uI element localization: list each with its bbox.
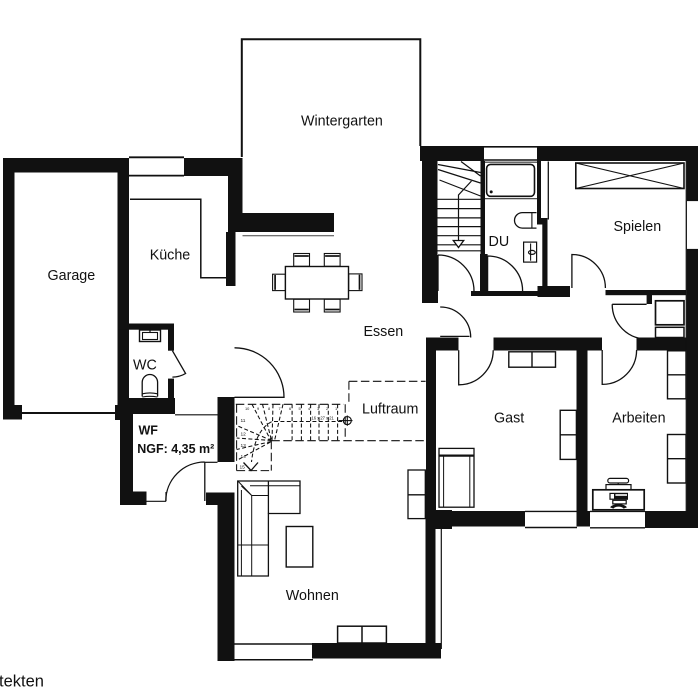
svg-text:Essen: Essen — [364, 324, 404, 340]
svg-text:7: 7 — [279, 406, 281, 411]
svg-text:Luftraum: Luftraum — [362, 401, 418, 417]
svg-text:Garage: Garage — [48, 268, 96, 284]
svg-text:Küche: Küche — [150, 248, 191, 264]
svg-text:12: 12 — [241, 432, 247, 438]
svg-text:WC: WC — [133, 358, 157, 374]
svg-text:11: 11 — [241, 418, 246, 424]
svg-text:Arbeiten: Arbeiten — [612, 410, 665, 426]
svg-text:DU: DU — [489, 234, 510, 250]
svg-text:16 x 27 x 21: 16 x 27 x 21 — [312, 415, 335, 420]
svg-text:Spielen: Spielen — [614, 219, 662, 235]
svg-text:tekten: tekten — [0, 673, 44, 691]
svg-text:6: 6 — [289, 406, 291, 411]
svg-text:WF: WF — [139, 424, 159, 438]
svg-text:3: 3 — [317, 406, 319, 411]
svg-text:Gast: Gast — [494, 410, 524, 426]
svg-text:13: 13 — [241, 443, 247, 449]
svg-text:14: 14 — [241, 454, 247, 460]
svg-text:15: 15 — [240, 465, 246, 471]
svg-text:Wintergarten: Wintergarten — [301, 114, 383, 130]
svg-text:NGF: 4,35 m²: NGF: 4,35 m² — [137, 442, 214, 456]
svg-text:1: 1 — [335, 406, 337, 411]
svg-text:5: 5 — [299, 406, 301, 411]
svg-text:2: 2 — [326, 406, 328, 411]
svg-text:9: 9 — [257, 406, 259, 411]
svg-text:Wohnen: Wohnen — [286, 588, 339, 604]
svg-text:8: 8 — [268, 406, 270, 411]
